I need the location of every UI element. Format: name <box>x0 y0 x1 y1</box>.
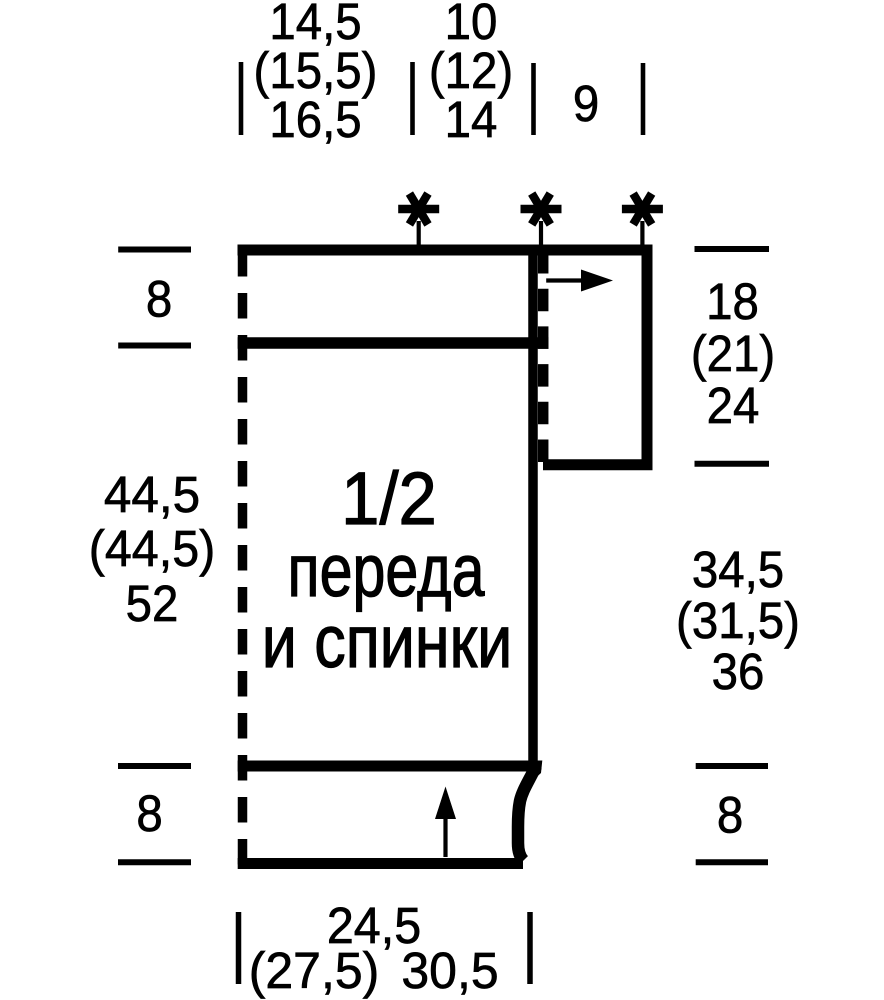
svg-text:52: 52 <box>126 575 179 632</box>
svg-text:8: 8 <box>146 271 172 328</box>
svg-text:24: 24 <box>707 377 760 434</box>
svg-text:14: 14 <box>445 91 498 148</box>
svg-text:36: 36 <box>712 643 765 700</box>
svg-text:1/2: 1/2 <box>341 458 437 541</box>
svg-text:30,5: 30,5 <box>401 942 498 1000</box>
svg-text:(31,5): (31,5) <box>676 592 800 649</box>
svg-text:16,5: 16,5 <box>269 91 361 148</box>
svg-text:44,5: 44,5 <box>104 466 200 523</box>
svg-text:34,5: 34,5 <box>692 541 784 598</box>
svg-text:и спинки: и спинки <box>262 600 513 683</box>
svg-text:(27,5): (27,5) <box>249 942 380 1000</box>
svg-text:(21): (21) <box>691 325 775 382</box>
svg-text:9: 9 <box>573 75 599 132</box>
svg-text:18: 18 <box>706 273 759 330</box>
svg-text:8: 8 <box>136 785 162 842</box>
svg-text:(44,5): (44,5) <box>89 520 216 577</box>
svg-text:8: 8 <box>717 787 743 844</box>
